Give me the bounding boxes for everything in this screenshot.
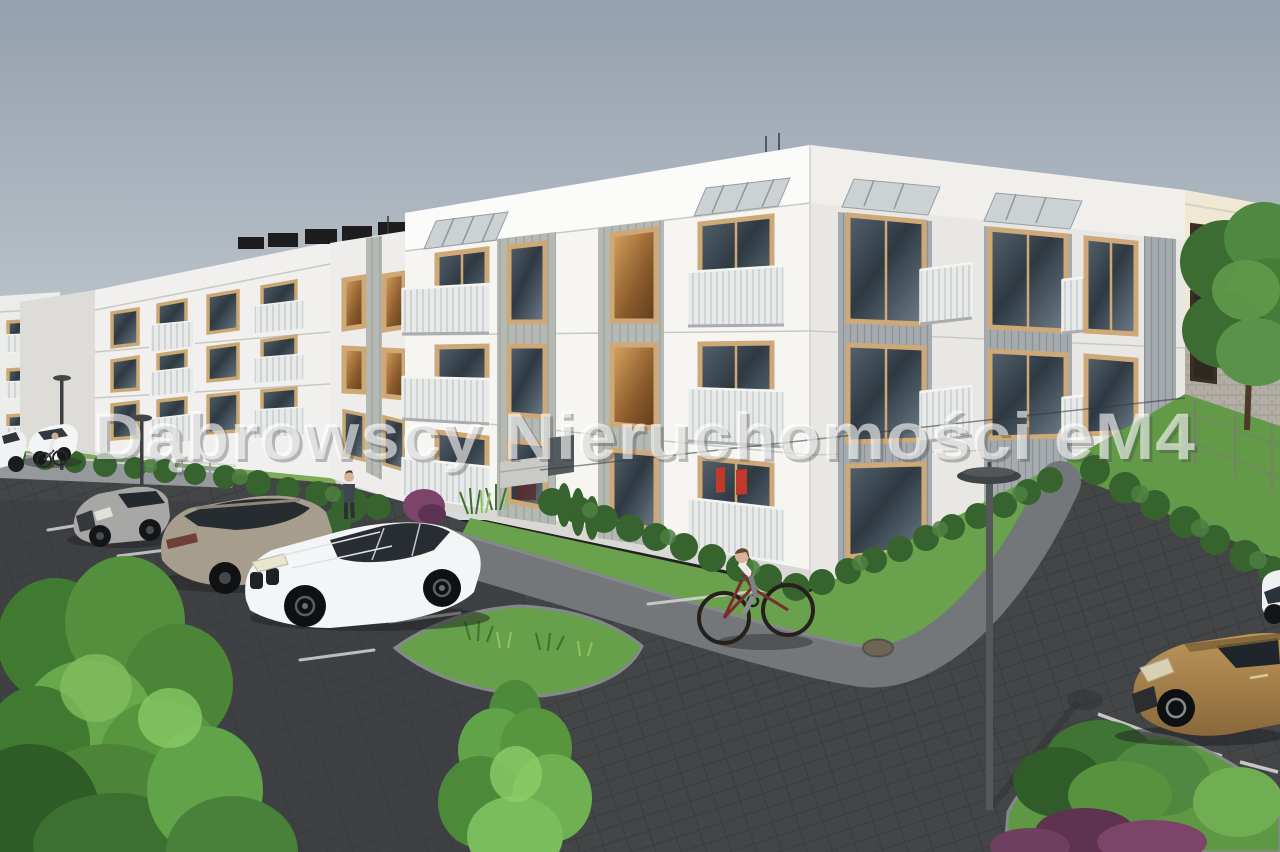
- car-white-far-left: [0, 430, 27, 472]
- watermark: Dąbrowscy Nieruchomości eM4 Dąbrowscy Ni…: [92, 399, 1199, 476]
- manhole-cover: [863, 640, 893, 657]
- watermark-text: Dąbrowscy Nieruchomości eM4: [92, 399, 1196, 473]
- car-white-right-edge: [1262, 570, 1280, 624]
- architectural-render: Dąbrowscy Nieruchomości eM4 Dąbrowscy Ni…: [0, 0, 1280, 852]
